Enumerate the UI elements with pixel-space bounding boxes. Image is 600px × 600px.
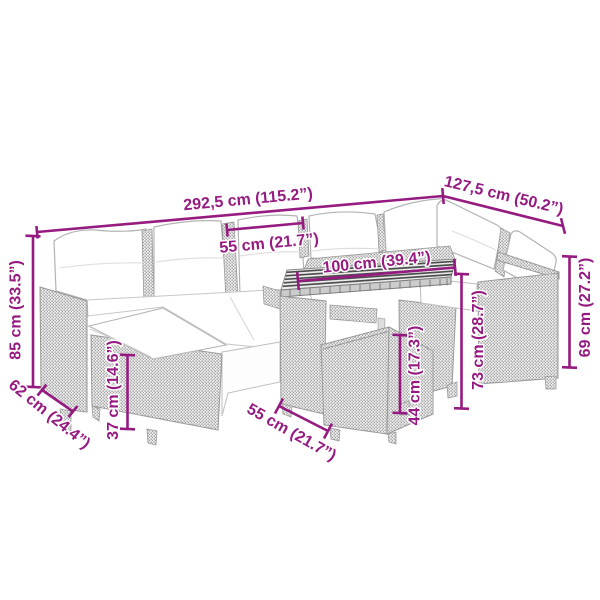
- svg-text:44 cm (17.3”): 44 cm (17.3”): [406, 326, 423, 426]
- svg-text:69 cm (27.2”): 69 cm (27.2”): [577, 258, 594, 358]
- svg-text:85 cm (33.5”): 85 cm (33.5”): [7, 260, 24, 360]
- svg-text:73 cm (28.7”): 73 cm (28.7”): [470, 290, 487, 390]
- svg-text:37 cm (14.6”): 37 cm (14.6”): [105, 340, 122, 440]
